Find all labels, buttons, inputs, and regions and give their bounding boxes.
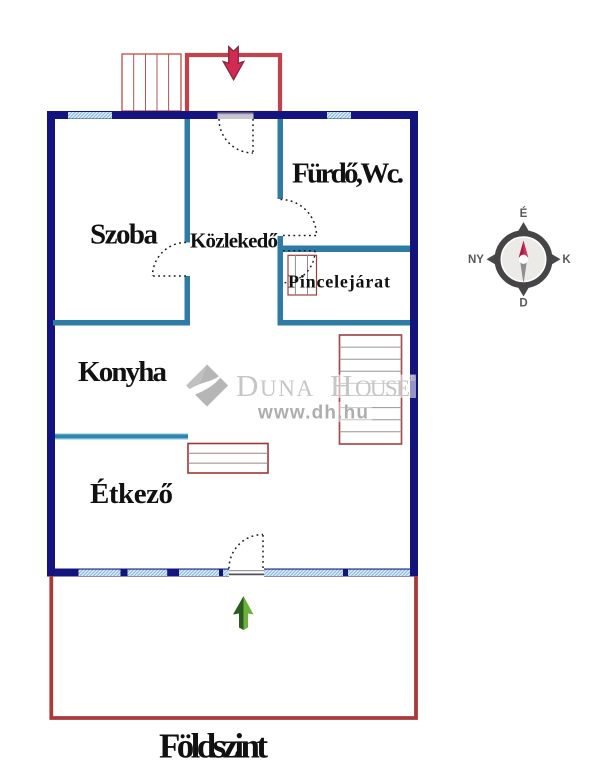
svg-text:Közlekedő: Közlekedő: [190, 229, 278, 253]
svg-text:É: É: [520, 207, 528, 220]
svg-text:H: H: [330, 368, 352, 403]
svg-text:Étkező: Étkező: [90, 477, 173, 510]
svg-text:UNA: UNA: [260, 376, 313, 401]
svg-text:D: D: [519, 298, 527, 310]
svg-text:Földszint: Földszint: [159, 727, 268, 766]
svg-text:www.dh.hu: www.dh.hu: [257, 403, 368, 424]
svg-text:Konyha: Konyha: [78, 356, 168, 388]
svg-text:D: D: [236, 368, 258, 403]
svg-text:OUSE: OUSE: [355, 376, 410, 401]
svg-text:K: K: [562, 254, 571, 266]
svg-text:Pincelejárat: Pincelejárat: [288, 272, 390, 292]
svg-text:Fürdő,Wc.: Fürdő,Wc.: [292, 158, 404, 190]
svg-text:Szoba: Szoba: [90, 219, 159, 251]
svg-text:®: ®: [409, 373, 416, 383]
svg-text:NY: NY: [468, 254, 484, 266]
